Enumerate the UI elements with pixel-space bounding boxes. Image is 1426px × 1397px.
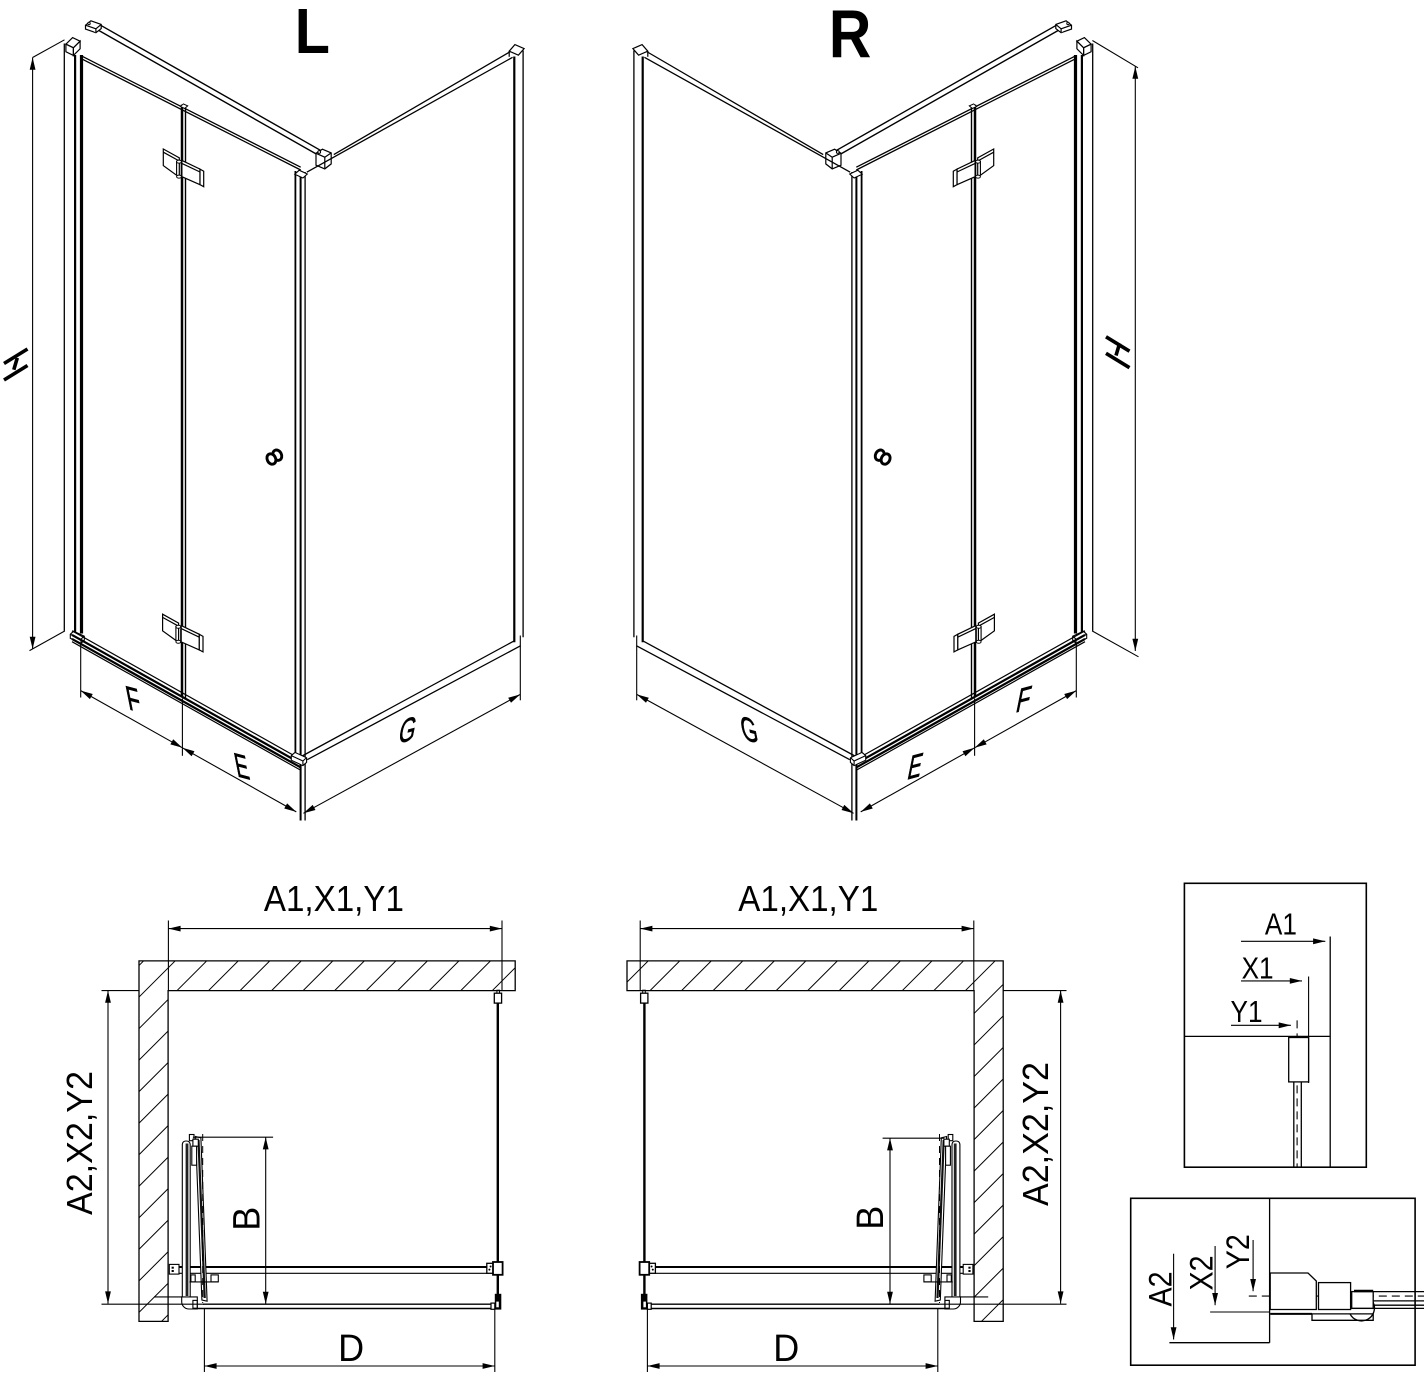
svg-text:Y1: Y1 bbox=[1231, 994, 1263, 1029]
svg-text:A2: A2 bbox=[1143, 1272, 1179, 1307]
svg-text:B: B bbox=[227, 1207, 269, 1231]
svg-text:B: B bbox=[850, 1206, 892, 1230]
svg-text:R: R bbox=[829, 0, 871, 72]
svg-text:D: D bbox=[773, 1328, 799, 1370]
svg-text:A2,X2,Y2: A2,X2,Y2 bbox=[1015, 1062, 1056, 1206]
svg-text:X2: X2 bbox=[1183, 1256, 1219, 1291]
svg-text:A1,X1,Y1: A1,X1,Y1 bbox=[264, 878, 404, 919]
svg-text:L: L bbox=[295, 0, 330, 67]
svg-text:A1,X1,Y1: A1,X1,Y1 bbox=[738, 878, 878, 919]
svg-text:A1: A1 bbox=[1265, 906, 1297, 941]
svg-text:A2,X2,Y2: A2,X2,Y2 bbox=[59, 1071, 100, 1215]
svg-text:X1: X1 bbox=[1242, 951, 1274, 986]
svg-text:Y2: Y2 bbox=[1220, 1234, 1256, 1269]
svg-text:D: D bbox=[338, 1328, 364, 1370]
